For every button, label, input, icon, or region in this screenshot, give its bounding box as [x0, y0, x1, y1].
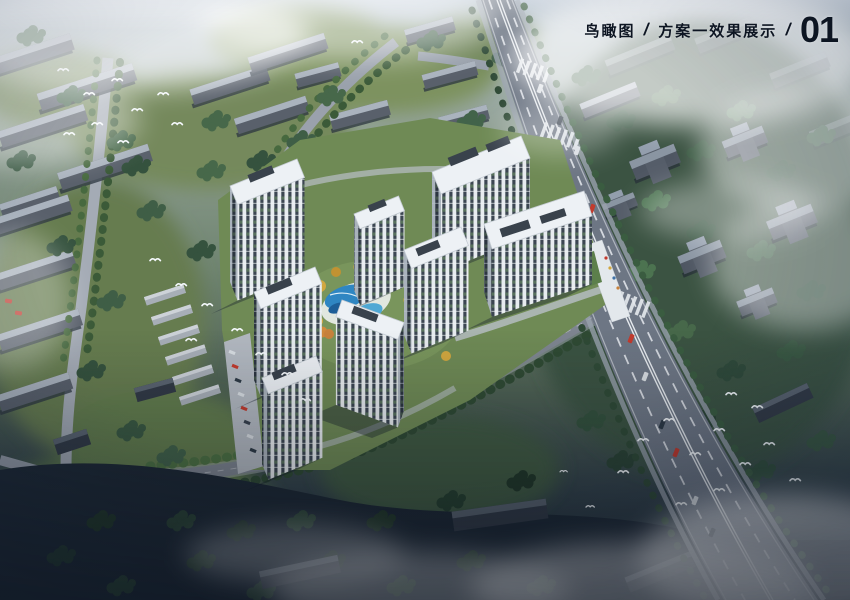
rendering-page: 鸟瞰图 / 方案一效果展示 / 01 [0, 0, 850, 600]
page-caption: 鸟瞰图 / 方案一效果展示 / 01 [584, 12, 838, 48]
bottom-shade [0, 0, 850, 600]
caption-separator: / [642, 20, 651, 40]
caption-separator-2: / [784, 20, 793, 40]
caption-page-number: 01 [800, 12, 838, 48]
caption-scheme-label: 方案一效果展示 [658, 20, 777, 41]
caption-view-label: 鸟瞰图 [584, 20, 635, 41]
aerial-rendering-image [0, 0, 850, 600]
